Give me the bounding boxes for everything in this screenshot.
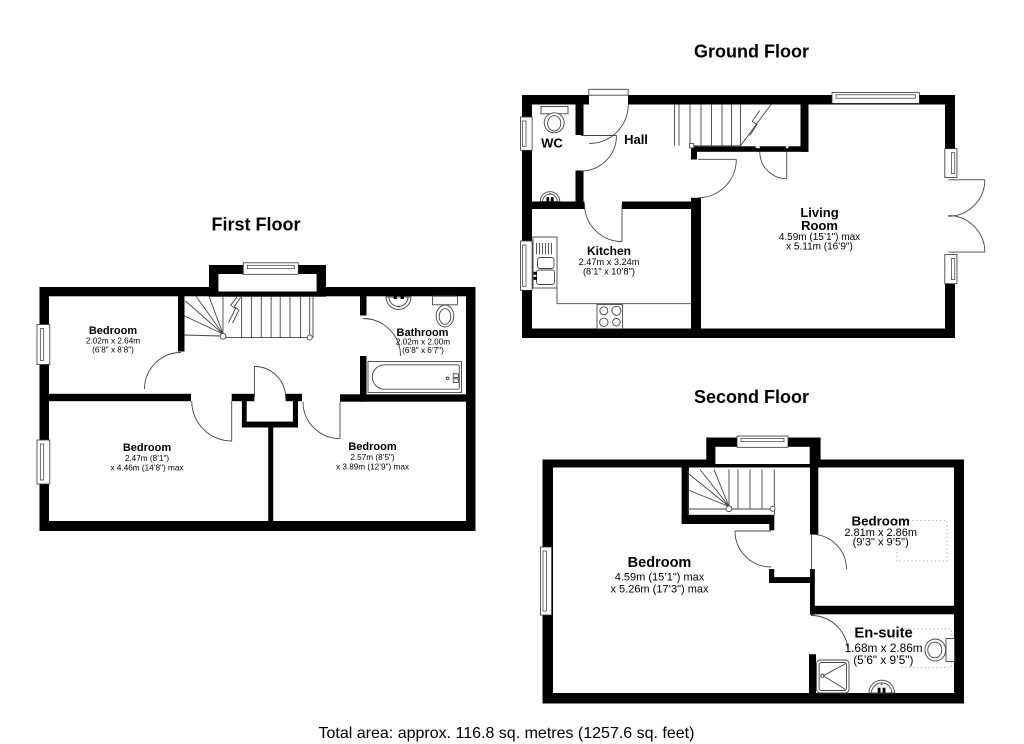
svg-text:x 3.89m (12’9") max: x 3.89m (12’9") max: [336, 462, 409, 471]
svg-text:WC: WC: [541, 135, 563, 150]
svg-text:(8’1" x 10’8"): (8’1" x 10’8"): [583, 266, 635, 276]
svg-text:x 4.46m (14’8") max: x 4.46m (14’8") max: [111, 463, 184, 472]
svg-text:Ground Floor: Ground Floor: [694, 42, 809, 62]
svg-text:x 5.11m (16’9"): x 5.11m (16’9"): [786, 241, 853, 252]
svg-text:2.47m x 3.24m: 2.47m x 3.24m: [579, 257, 640, 267]
svg-text:(6’8" x 8’8"): (6’8" x 8’8"): [92, 346, 134, 355]
svg-text:2.47m (8’1"): 2.47m (8’1"): [125, 454, 170, 463]
svg-text:Total area: approx. 116.8 sq.: Total area: approx. 116.8 sq. metres (12…: [319, 725, 695, 742]
svg-text:Bedroom: Bedroom: [123, 442, 172, 454]
svg-text:Hall: Hall: [624, 132, 648, 147]
svg-text:Second Floor: Second Floor: [694, 387, 809, 407]
svg-text:En-suite: En-suite: [854, 626, 912, 642]
svg-text:2.57m (8’5"): 2.57m (8’5"): [350, 453, 395, 462]
svg-text:2.02m x 2.64m: 2.02m x 2.64m: [86, 337, 140, 346]
svg-text:4.59m (15’1") max: 4.59m (15’1") max: [615, 572, 705, 584]
svg-text:Bedroom: Bedroom: [89, 325, 138, 337]
svg-text:x 5.26m (17’3") max: x 5.26m (17’3") max: [610, 583, 709, 595]
svg-text:Bedroom: Bedroom: [348, 441, 397, 453]
svg-text:Bedroom: Bedroom: [628, 555, 692, 571]
svg-text:(5’6" x 9’5"): (5’6" x 9’5"): [853, 653, 913, 667]
svg-text:(9’3" x 9’5"): (9’3" x 9’5"): [853, 537, 909, 549]
svg-text:Room: Room: [801, 218, 838, 233]
svg-text:(6’8" x 6’7"): (6’8" x 6’7"): [402, 346, 444, 355]
svg-text:First Floor: First Floor: [212, 215, 301, 235]
